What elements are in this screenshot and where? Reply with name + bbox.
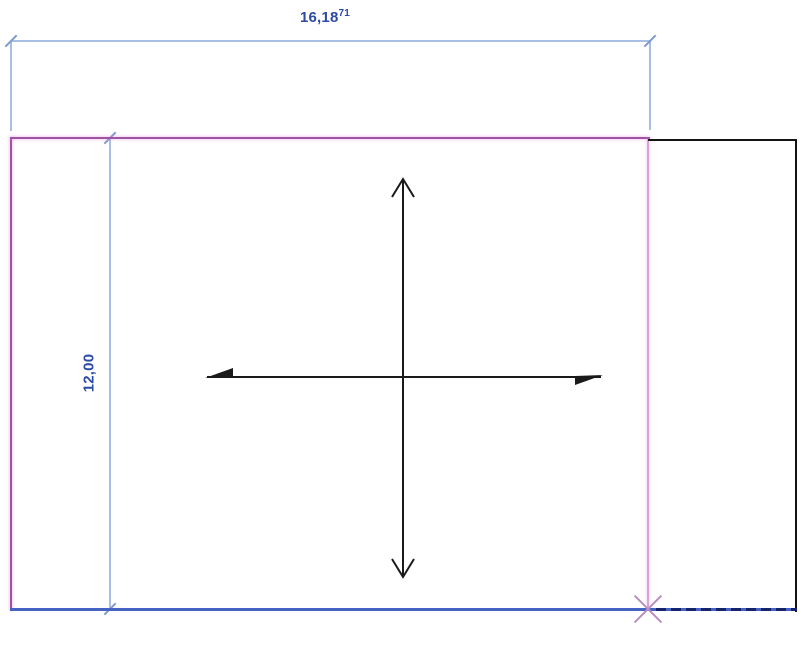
width-dimension-line[interactable] — [11, 40, 650, 42]
model-rectangle[interactable] — [648, 139, 797, 612]
height-dimension-text[interactable]: 12,00 — [81, 354, 98, 393]
selected-region-left-edge[interactable] — [10, 137, 12, 611]
width-dimension-witness-left — [10, 41, 12, 131]
width-dimension-witness-right — [649, 41, 651, 130]
height-dimension-value: 12,00 — [81, 354, 98, 393]
right-half-arrow-icon — [575, 375, 603, 385]
width-dimension-value: 16,18 — [300, 9, 339, 26]
selected-region-top-edge[interactable] — [10, 137, 650, 139]
width-dimension-text[interactable]: 16,1871 — [300, 8, 350, 26]
height-dimension-line[interactable] — [109, 138, 111, 611]
bottom-dashed-line-segment[interactable] — [656, 608, 797, 611]
width-dimension-superscript: 71 — [339, 8, 351, 19]
reference-axes — [195, 165, 615, 590]
drawing-canvas[interactable]: 16,1871 12,00 — [0, 0, 800, 646]
